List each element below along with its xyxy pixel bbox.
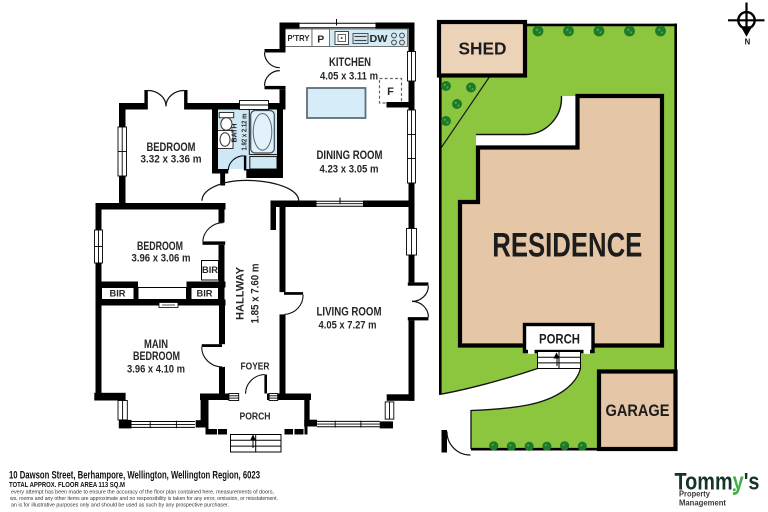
svg-text:BEDROOM: BEDROOM	[137, 241, 183, 253]
svg-text:PORCH: PORCH	[539, 332, 580, 347]
svg-text:RESIDENCE: RESIDENCE	[492, 227, 642, 265]
svg-text:MAIN: MAIN	[144, 339, 168, 351]
svg-text:F: F	[387, 86, 394, 98]
svg-text:4.05 x 3.11 m: 4.05 x 3.11 m	[320, 71, 378, 83]
svg-text:GARAGE: GARAGE	[606, 401, 670, 420]
svg-text:TOTAL APPROX. FLOOR AREA 113 S: TOTAL APPROX. FLOOR AREA 113 SQ.M	[9, 480, 125, 489]
svg-text:4.05 x 7.27 m: 4.05 x 7.27 m	[319, 319, 377, 331]
svg-text:PORCH: PORCH	[240, 411, 271, 423]
svg-text:DW: DW	[370, 33, 388, 45]
svg-text:N: N	[745, 38, 751, 47]
svg-text:BIR: BIR	[202, 265, 219, 275]
svg-text:Property: Property	[679, 490, 710, 499]
svg-text:Management: Management	[679, 499, 726, 508]
svg-text:an is for illustrative purpose: an is for illustrative purposes only and…	[11, 503, 229, 509]
svg-text:1.85 x 7.60 m: 1.85 x 7.60 m	[250, 263, 262, 323]
svg-text:P: P	[317, 34, 324, 46]
svg-text:HALLWAY: HALLWAY	[234, 266, 246, 320]
svg-text:3.96 x 3.06 m: 3.96 x 3.06 m	[132, 252, 191, 264]
svg-text:BATH: BATH	[230, 124, 239, 143]
svg-text:SHED: SHED	[459, 39, 507, 59]
svg-text:BEDROOM: BEDROOM	[147, 142, 196, 154]
svg-text:3.32 x 3.36 m: 3.32 x 3.36 m	[141, 154, 202, 166]
svg-text:BIR: BIR	[110, 289, 127, 299]
svg-text:4.23 x 3.05 m: 4.23 x 3.05 m	[320, 163, 379, 175]
svg-text:3.96 x 4.10 m: 3.96 x 4.10 m	[127, 364, 185, 376]
svg-text:P'TRY: P'TRY	[288, 33, 310, 43]
svg-text:BEDROOM: BEDROOM	[133, 351, 180, 363]
svg-text:every attempt has been made to: every attempt has been made to ensure th…	[11, 490, 274, 496]
svg-text:KITCHEN: KITCHEN	[329, 57, 371, 69]
svg-text:LIVING ROOM: LIVING ROOM	[317, 307, 382, 319]
svg-text:ws, rooms and any other items: ws, rooms and any other items are approx…	[9, 496, 278, 502]
svg-text:FOYER: FOYER	[241, 361, 270, 373]
svg-text:BIR: BIR	[197, 289, 214, 299]
svg-text:DINING ROOM: DINING ROOM	[317, 150, 383, 162]
svg-text:1.92 x 2.12 m: 1.92 x 2.12 m	[240, 114, 249, 151]
